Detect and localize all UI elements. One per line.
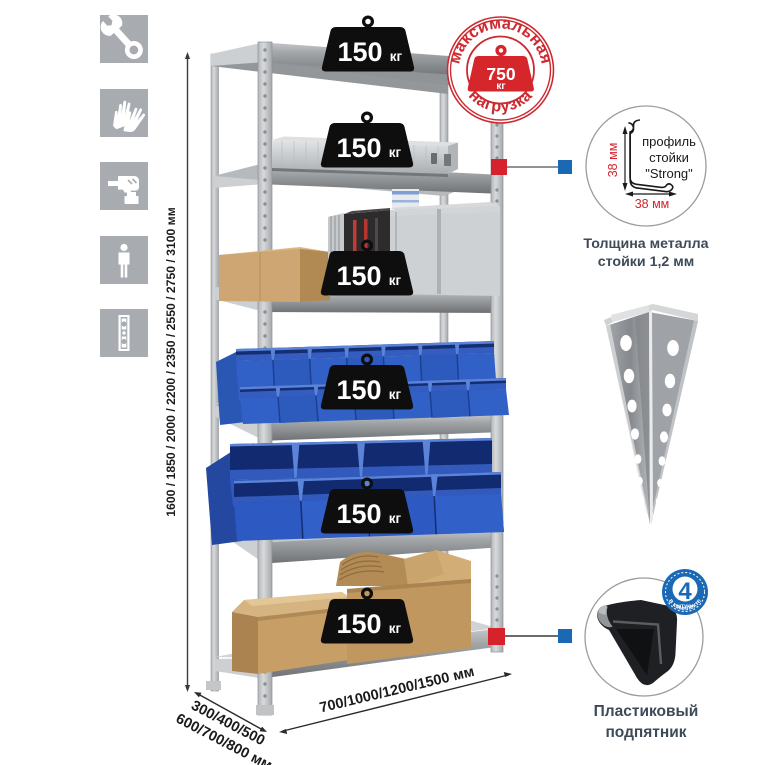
svg-text:стойки: стойки — [649, 150, 689, 165]
svg-text:150: 150 — [337, 37, 382, 67]
svg-text:подпятник: подпятник — [605, 724, 686, 741]
svg-text:38 мм: 38 мм — [635, 197, 670, 211]
svg-text:кг: кг — [389, 511, 402, 526]
svg-text:150: 150 — [336, 261, 381, 291]
svg-text:38 мм: 38 мм — [606, 143, 620, 178]
svg-text:150: 150 — [336, 499, 381, 529]
svg-text:кг: кг — [389, 273, 402, 288]
svg-text:кг: кг — [389, 145, 402, 160]
svg-text:1600 / 1850 / 2000 / 2200 / 23: 1600 / 1850 / 2000 / 2200 / 2350 / 2550 … — [164, 207, 178, 516]
svg-text:кг: кг — [389, 621, 402, 636]
svg-text:кг: кг — [389, 387, 402, 402]
svg-text:кг: кг — [496, 81, 505, 92]
svg-text:150: 150 — [336, 375, 381, 405]
svg-text:штуки: штуки — [677, 604, 694, 610]
svg-text:150: 150 — [336, 609, 381, 639]
svg-text:профиль: профиль — [642, 134, 696, 149]
svg-text:Пластиковый: Пластиковый — [594, 703, 699, 720]
svg-text:150: 150 — [336, 133, 381, 163]
svg-text:"Strong": "Strong" — [645, 166, 693, 181]
svg-text:стойки 1,2 мм: стойки 1,2 мм — [598, 254, 694, 270]
svg-text:4: 4 — [678, 578, 692, 605]
svg-text:Толщина металла: Толщина металла — [583, 236, 708, 252]
svg-text:кг: кг — [390, 49, 403, 64]
